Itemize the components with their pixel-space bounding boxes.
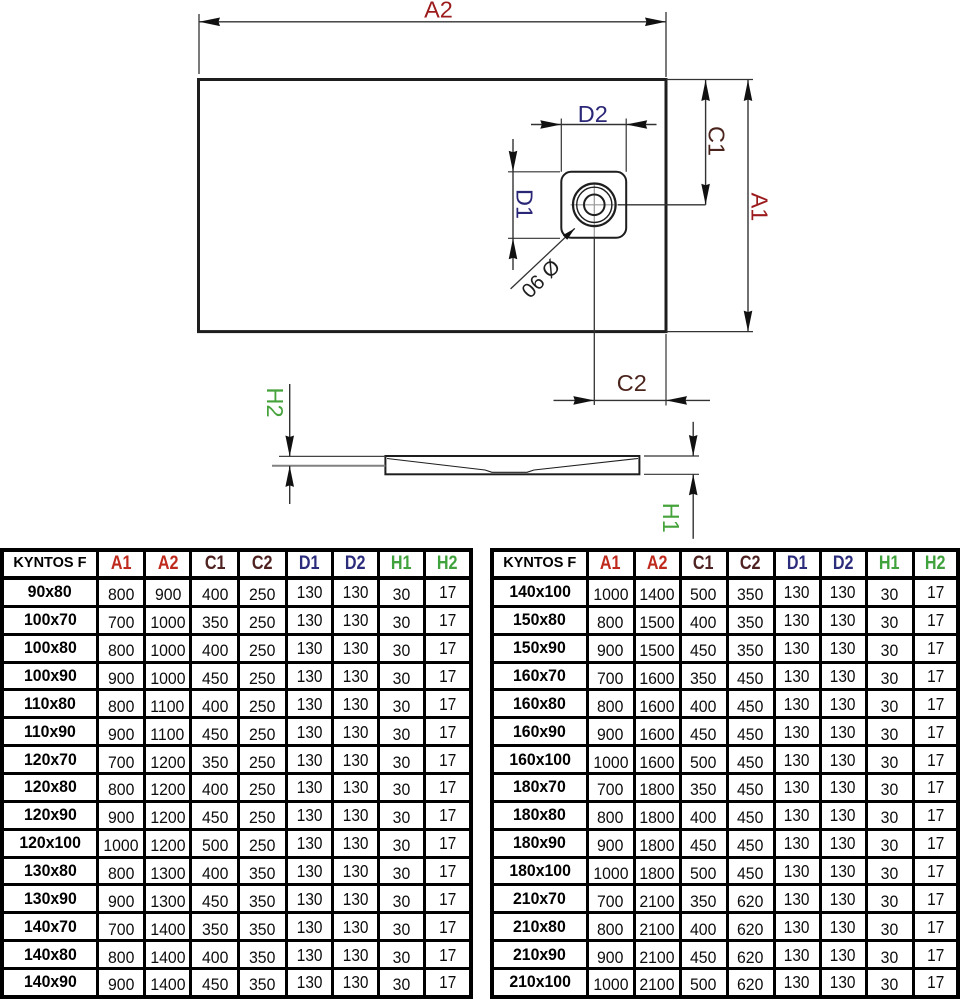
svg-text:D1: D1: [512, 189, 538, 219]
svg-text:H2: H2: [262, 387, 288, 417]
svg-text:H1: H1: [658, 503, 684, 533]
svg-text:C1: C1: [704, 126, 730, 156]
svg-text:C2: C2: [617, 370, 647, 396]
svg-text:A2: A2: [424, 0, 453, 23]
svg-text:A1: A1: [747, 193, 773, 222]
svg-text:D2: D2: [578, 101, 608, 127]
